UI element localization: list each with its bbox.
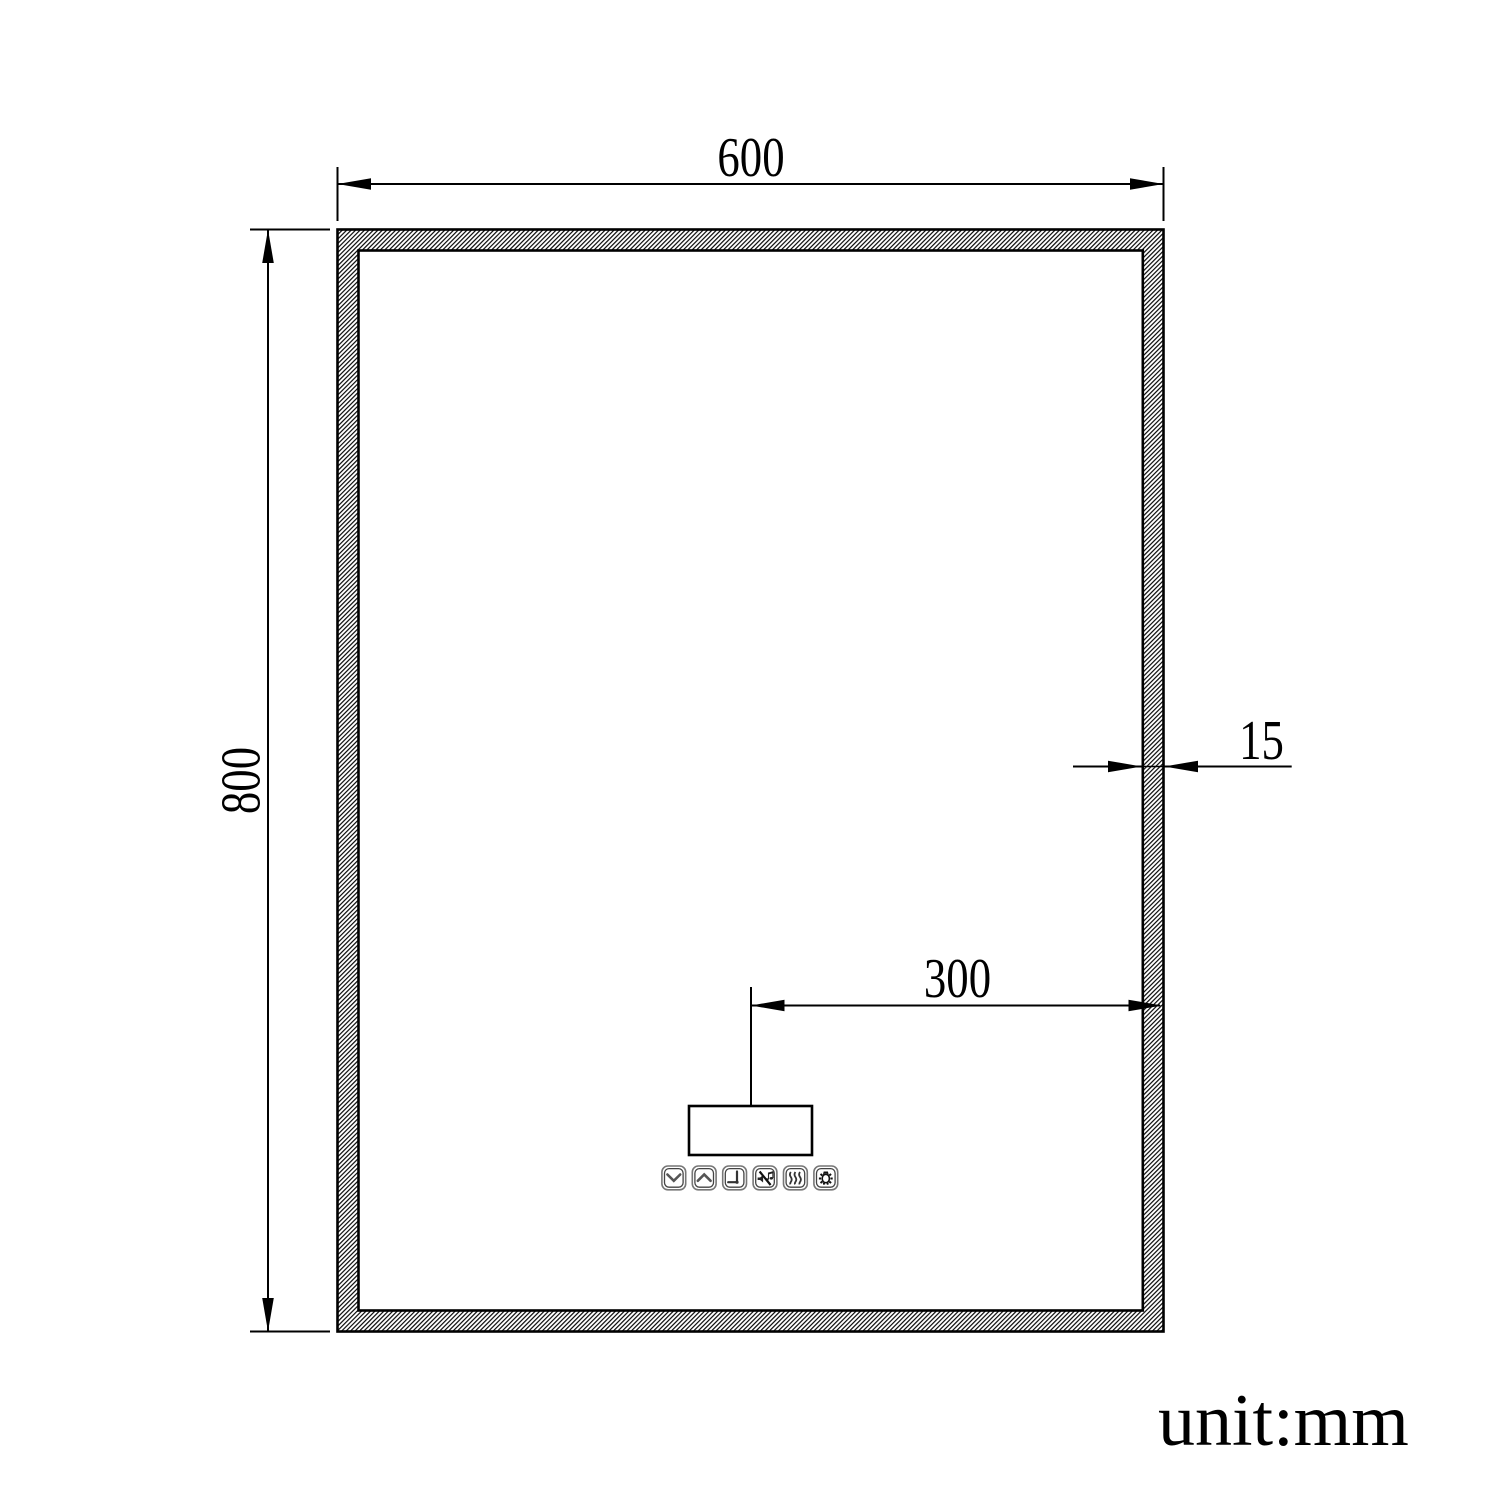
svg-text:300: 300 [924,947,991,1009]
svg-text:unit:mm: unit:mm [1158,1380,1409,1462]
svg-text:800: 800 [210,747,272,814]
svg-text:600: 600 [717,126,784,188]
svg-text:15: 15 [1239,709,1284,771]
